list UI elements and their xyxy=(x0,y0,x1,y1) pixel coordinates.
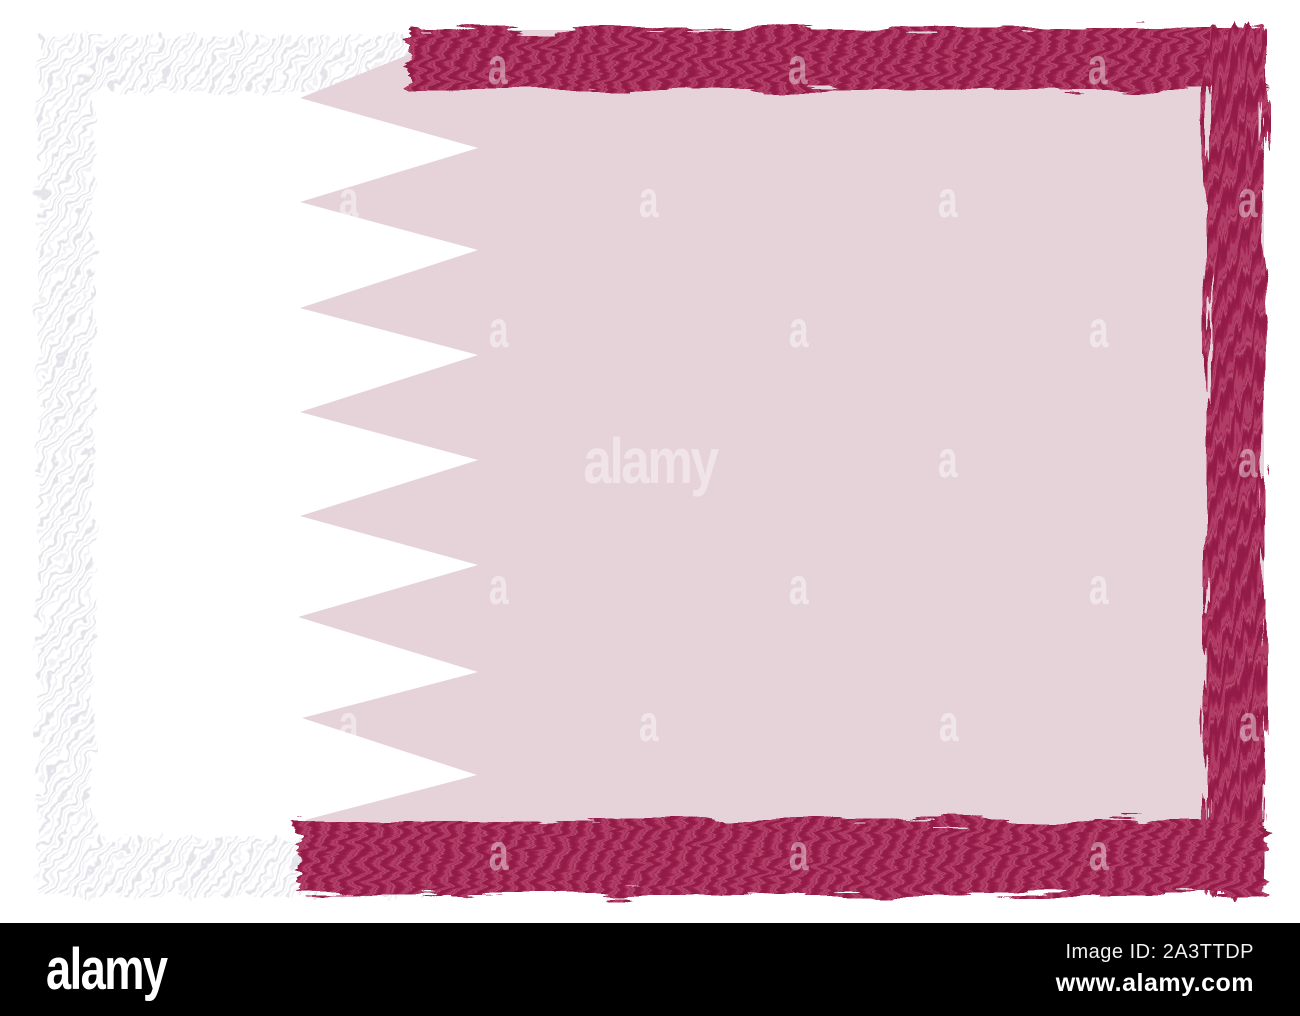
stock-image-page: aaaaaaaaaaaaaaaaaaaaaa alamy alamy Image… xyxy=(0,0,1300,1016)
website-text: www.alamy.com xyxy=(1056,969,1254,998)
alamy-logo: alamy xyxy=(46,941,166,999)
footer-bar: alamy Image ID: 2A3TTDP www.alamy.com xyxy=(0,923,1300,1016)
qatar-flag-border-graphic xyxy=(0,0,1300,923)
footer-info: Image ID: 2A3TTDP www.alamy.com xyxy=(1056,941,1254,998)
maroon-border-top xyxy=(408,28,1264,90)
flag-border-artwork: aaaaaaaaaaaaaaaaaaaaaa alamy xyxy=(0,0,1300,923)
maroon-border-bottom xyxy=(298,820,1264,894)
maroon-border-right xyxy=(1206,28,1264,894)
image-id-text: Image ID: 2A3TTDP xyxy=(1065,941,1254,964)
white-frame-left-segment xyxy=(38,36,94,894)
